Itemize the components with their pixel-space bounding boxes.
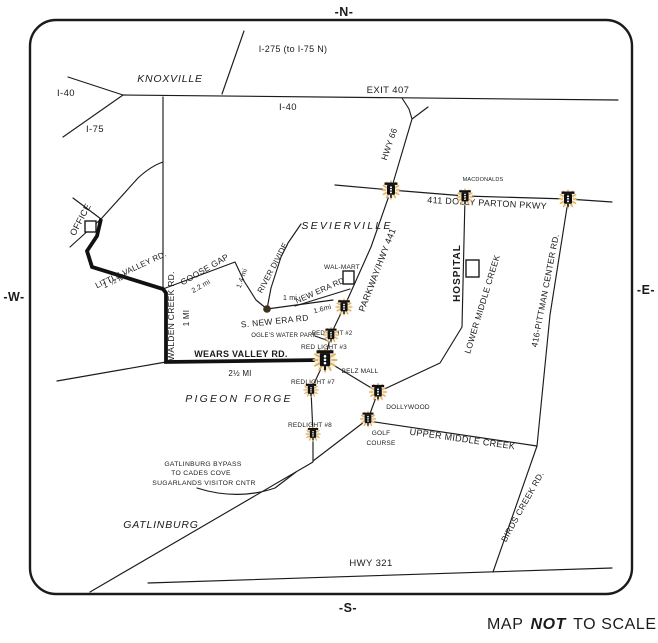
label-bypass-line1: GATLINBURG BYPASS — [164, 461, 242, 468]
junction-dot — [263, 305, 271, 313]
traffic-light-icon — [313, 348, 338, 373]
label-i75: I-75 — [86, 124, 104, 135]
office-marker — [85, 221, 96, 232]
label-bypass-line3: SUGARLANDS VISITOR CNTR — [152, 480, 255, 487]
road-office-access — [101, 162, 163, 219]
labels: I-40 I-75 I-40 I-275 (to I-75 N) EXIT 40… — [3, 5, 655, 615]
label-upper-middle-creek: UPPER MIDDLE CREEK — [409, 427, 516, 452]
label-new-era: NEW ERA RD — [294, 276, 346, 306]
compass-west: -W- — [3, 290, 24, 304]
label-knoxville: KNOXVILLE — [137, 73, 203, 85]
label-walden-creek-dist: 1 MI — [182, 310, 191, 326]
label-hwy321: HWY 321 — [349, 558, 392, 569]
label-sevierville: SEVIERVILLE — [301, 220, 392, 232]
note-not: NOT — [530, 616, 566, 633]
note-map: MAP — [487, 616, 523, 633]
label-i40-east: I-40 — [279, 102, 297, 113]
label-gatlinburg: GATLINBURG — [123, 519, 198, 531]
map-scale-note: MAPNOTTO SCALE — [487, 616, 657, 633]
label-hwy66: HWY 66 — [379, 127, 399, 162]
road-i40-west — [68, 77, 123, 95]
traffic-light-icon — [360, 411, 376, 427]
label-pigeon-forge: PIGEON FORGE — [185, 393, 293, 405]
label-parkway: PARKWAY/HWY 441 — [357, 227, 398, 313]
label-i40-west: I-40 — [57, 88, 75, 99]
compass-south: -S- — [339, 601, 357, 615]
label-exit-407: EXIT 407 — [367, 85, 410, 96]
roads — [57, 31, 618, 592]
label-hospital: HOSPITAL — [452, 244, 463, 302]
map-canvas: I-40 I-75 I-40 I-275 (to I-75 N) EXIT 40… — [0, 0, 658, 643]
label-dollywood: DOLLYWOOD — [386, 404, 430, 411]
label-bypass-line2: TO CADES COVE — [171, 470, 231, 477]
road-i275 — [222, 31, 244, 94]
note-to-scale: TO SCALE — [573, 616, 657, 633]
label-1-mi: 1 mi — [283, 295, 297, 302]
label-birds-creek: BIRDS CREEK RD. — [499, 470, 546, 544]
traffic-light-icon — [559, 190, 578, 209]
label-pittman-center: 416-PITTMAN CENTER RD. — [529, 233, 561, 348]
label-i275: I-275 (to I-75 N) — [259, 44, 328, 54]
label-golf-line1: GOLF — [372, 430, 391, 437]
label-belz-mall: BELZ MALL — [342, 368, 379, 375]
label-1-6-mi: 1.6mi — [313, 304, 333, 316]
compass-east: -E- — [637, 283, 655, 297]
road-exit407-ramp — [402, 98, 428, 119]
hospital-marker — [466, 260, 479, 277]
label-wears-valley-dist: 2½ MI — [228, 369, 251, 378]
label-river-divide: RIVER DIVIDE — [256, 241, 290, 294]
label-wears-valley: WEARS VALLEY RD. — [194, 349, 287, 359]
traffic-light-icon — [369, 383, 387, 401]
label-s-new-era: S. NEW ERA RD — [240, 312, 309, 329]
traffic-light-icon — [382, 181, 401, 200]
route-highlight-bold — [87, 219, 322, 362]
label-golf-line2: COURSE — [366, 440, 395, 447]
road-parkway-hwy441 — [90, 190, 391, 592]
road-wears-valley-west — [57, 362, 166, 381]
direction-map: I-40 I-75 I-40 I-275 (to I-75 N) EXIT 40… — [0, 0, 658, 643]
traffic-light-icon — [323, 327, 339, 343]
label-walden-creek: WALDEN CREEK RD. — [166, 271, 176, 361]
label-mcdonalds: MACDONALDS — [463, 177, 504, 183]
traffic-light-icon — [335, 298, 352, 315]
compass-north: -N- — [335, 5, 354, 19]
label-ogles-water-park: OGLE'S WATER PARK — [251, 333, 316, 339]
label-walmart: WAL-MART — [324, 264, 360, 271]
road-hwy321 — [148, 568, 612, 583]
